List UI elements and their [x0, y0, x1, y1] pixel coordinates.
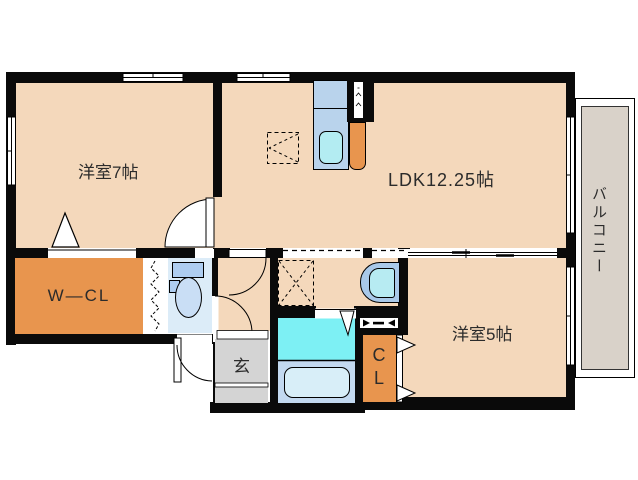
room-label-walk-in-closet: W—CL: [15, 258, 143, 334]
wall: [270, 306, 316, 318]
wall: [213, 80, 222, 197]
wall: [557, 248, 575, 258]
kitchen-counter: [313, 80, 349, 109]
room-label-genkan: 玄: [233, 352, 250, 377]
wall: [354, 306, 398, 318]
wall: [212, 258, 218, 298]
wall: [136, 248, 195, 258]
ldk-corner-floor: [213, 197, 222, 248]
kitchen-sink: [319, 131, 343, 164]
pipe-space: [354, 82, 363, 118]
wall: [6, 72, 575, 83]
wall: [210, 402, 365, 413]
wall: [270, 258, 278, 405]
room-label-ldk: LDK12.25帖: [388, 166, 495, 192]
bathtub: [284, 367, 350, 398]
genkan-agarikamachi: [217, 331, 268, 340]
washroom-floor: [278, 318, 355, 361]
toilet-tank: [172, 262, 204, 278]
floor-plan: 洋室7帖 LDK12.25帖 洋室5帖 バルコニー W—CL 玄 CL: [0, 0, 638, 480]
wall: [566, 83, 575, 117]
genkan-step: [215, 387, 268, 403]
hallway-floor: [218, 258, 270, 331]
accordion-door-icon: [151, 261, 159, 331]
wall: [266, 248, 283, 258]
wall: [6, 334, 213, 344]
sliding-door-icon: [408, 249, 557, 258]
room-label-balcony: バルコニー: [588, 186, 609, 276]
kitchen-appliance: [349, 122, 366, 170]
wall: [363, 248, 372, 258]
opening-icon: [283, 249, 408, 258]
room-label-western5: 洋室5帖: [452, 320, 512, 345]
wall: [213, 248, 230, 258]
wash-basin-bowl: [369, 268, 395, 298]
room-label-closet: CL: [369, 344, 389, 389]
toilet-bowl: [175, 277, 202, 318]
wall: [6, 248, 48, 258]
room-label-western7: 洋室7帖: [78, 158, 138, 183]
